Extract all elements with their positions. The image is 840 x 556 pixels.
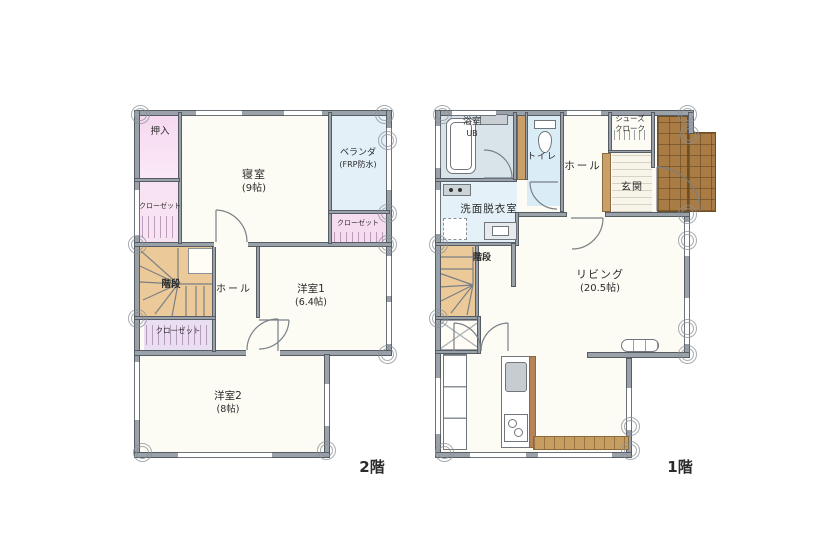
living-double-door-swing-icon	[480, 322, 510, 352]
window-marker	[684, 298, 690, 344]
vanity-basin-icon	[492, 226, 509, 236]
f1-wall-stairhall	[511, 243, 516, 287]
window-marker	[435, 190, 441, 234]
entrance-label: 玄関	[610, 181, 654, 194]
f1-wall-living-bottom	[587, 352, 690, 358]
kitchen-wood-edge	[529, 356, 536, 448]
column-marker	[432, 312, 445, 325]
column-marker	[681, 234, 694, 247]
f1-wall-toilet-left	[525, 112, 528, 180]
bath-door-swing-icon	[482, 148, 514, 180]
floor-plan-page: { "document": { "type": "floor-plan", "b…	[0, 0, 840, 556]
toilet-door-swing-icon	[529, 180, 559, 210]
f1-wall-shoes-bottom	[608, 150, 653, 153]
hall1-label: ホール	[556, 160, 610, 174]
hall-living-door-swing-icon	[570, 216, 604, 250]
column-marker	[681, 108, 694, 121]
living-double-door-swing-icon	[452, 322, 482, 352]
column-marker	[624, 444, 637, 457]
column-marker	[681, 208, 694, 221]
window-marker	[567, 110, 601, 116]
shoes-closet-label: シューズ クローク	[606, 114, 654, 134]
column-marker	[436, 108, 449, 121]
faucet-dot-icon	[449, 188, 453, 192]
washer-icon	[443, 218, 467, 240]
laundry-label: 洗面脱衣室	[446, 203, 532, 217]
column-marker	[681, 348, 694, 361]
wood-deck	[533, 436, 629, 450]
stove-burner-icon	[508, 419, 517, 428]
column-marker	[432, 238, 445, 251]
laundry-counter-icon	[443, 184, 471, 196]
window-marker	[435, 378, 441, 434]
column-marker	[438, 446, 451, 459]
window-marker	[538, 452, 612, 458]
kitchen-sink-icon	[505, 362, 527, 392]
toilet-tank-icon	[534, 120, 556, 129]
column-marker	[683, 128, 696, 141]
stairs1-label: 階段	[460, 253, 504, 265]
front-door-swing-icon	[655, 166, 701, 212]
bath-label: 浴室 UB	[450, 117, 494, 139]
floor1-title: 1階	[654, 458, 706, 478]
window-marker	[435, 126, 441, 168]
column-marker	[624, 420, 637, 433]
sofa-icon	[621, 339, 659, 352]
f1-wall-mid-b	[605, 212, 690, 217]
faucet-dot-icon	[458, 188, 462, 192]
living-label: リビング (20.5帖)	[552, 268, 648, 295]
stove-burner-icon	[514, 428, 523, 437]
window-marker	[452, 110, 496, 116]
kitchen-cabinet-icon	[443, 354, 467, 450]
floor1-plan: 浴室 UB トイレ 洗面脱衣室 ホール シューズ クローク 玄関 階段 リビング…	[0, 0, 840, 556]
window-marker	[470, 452, 526, 458]
column-marker	[681, 322, 694, 335]
